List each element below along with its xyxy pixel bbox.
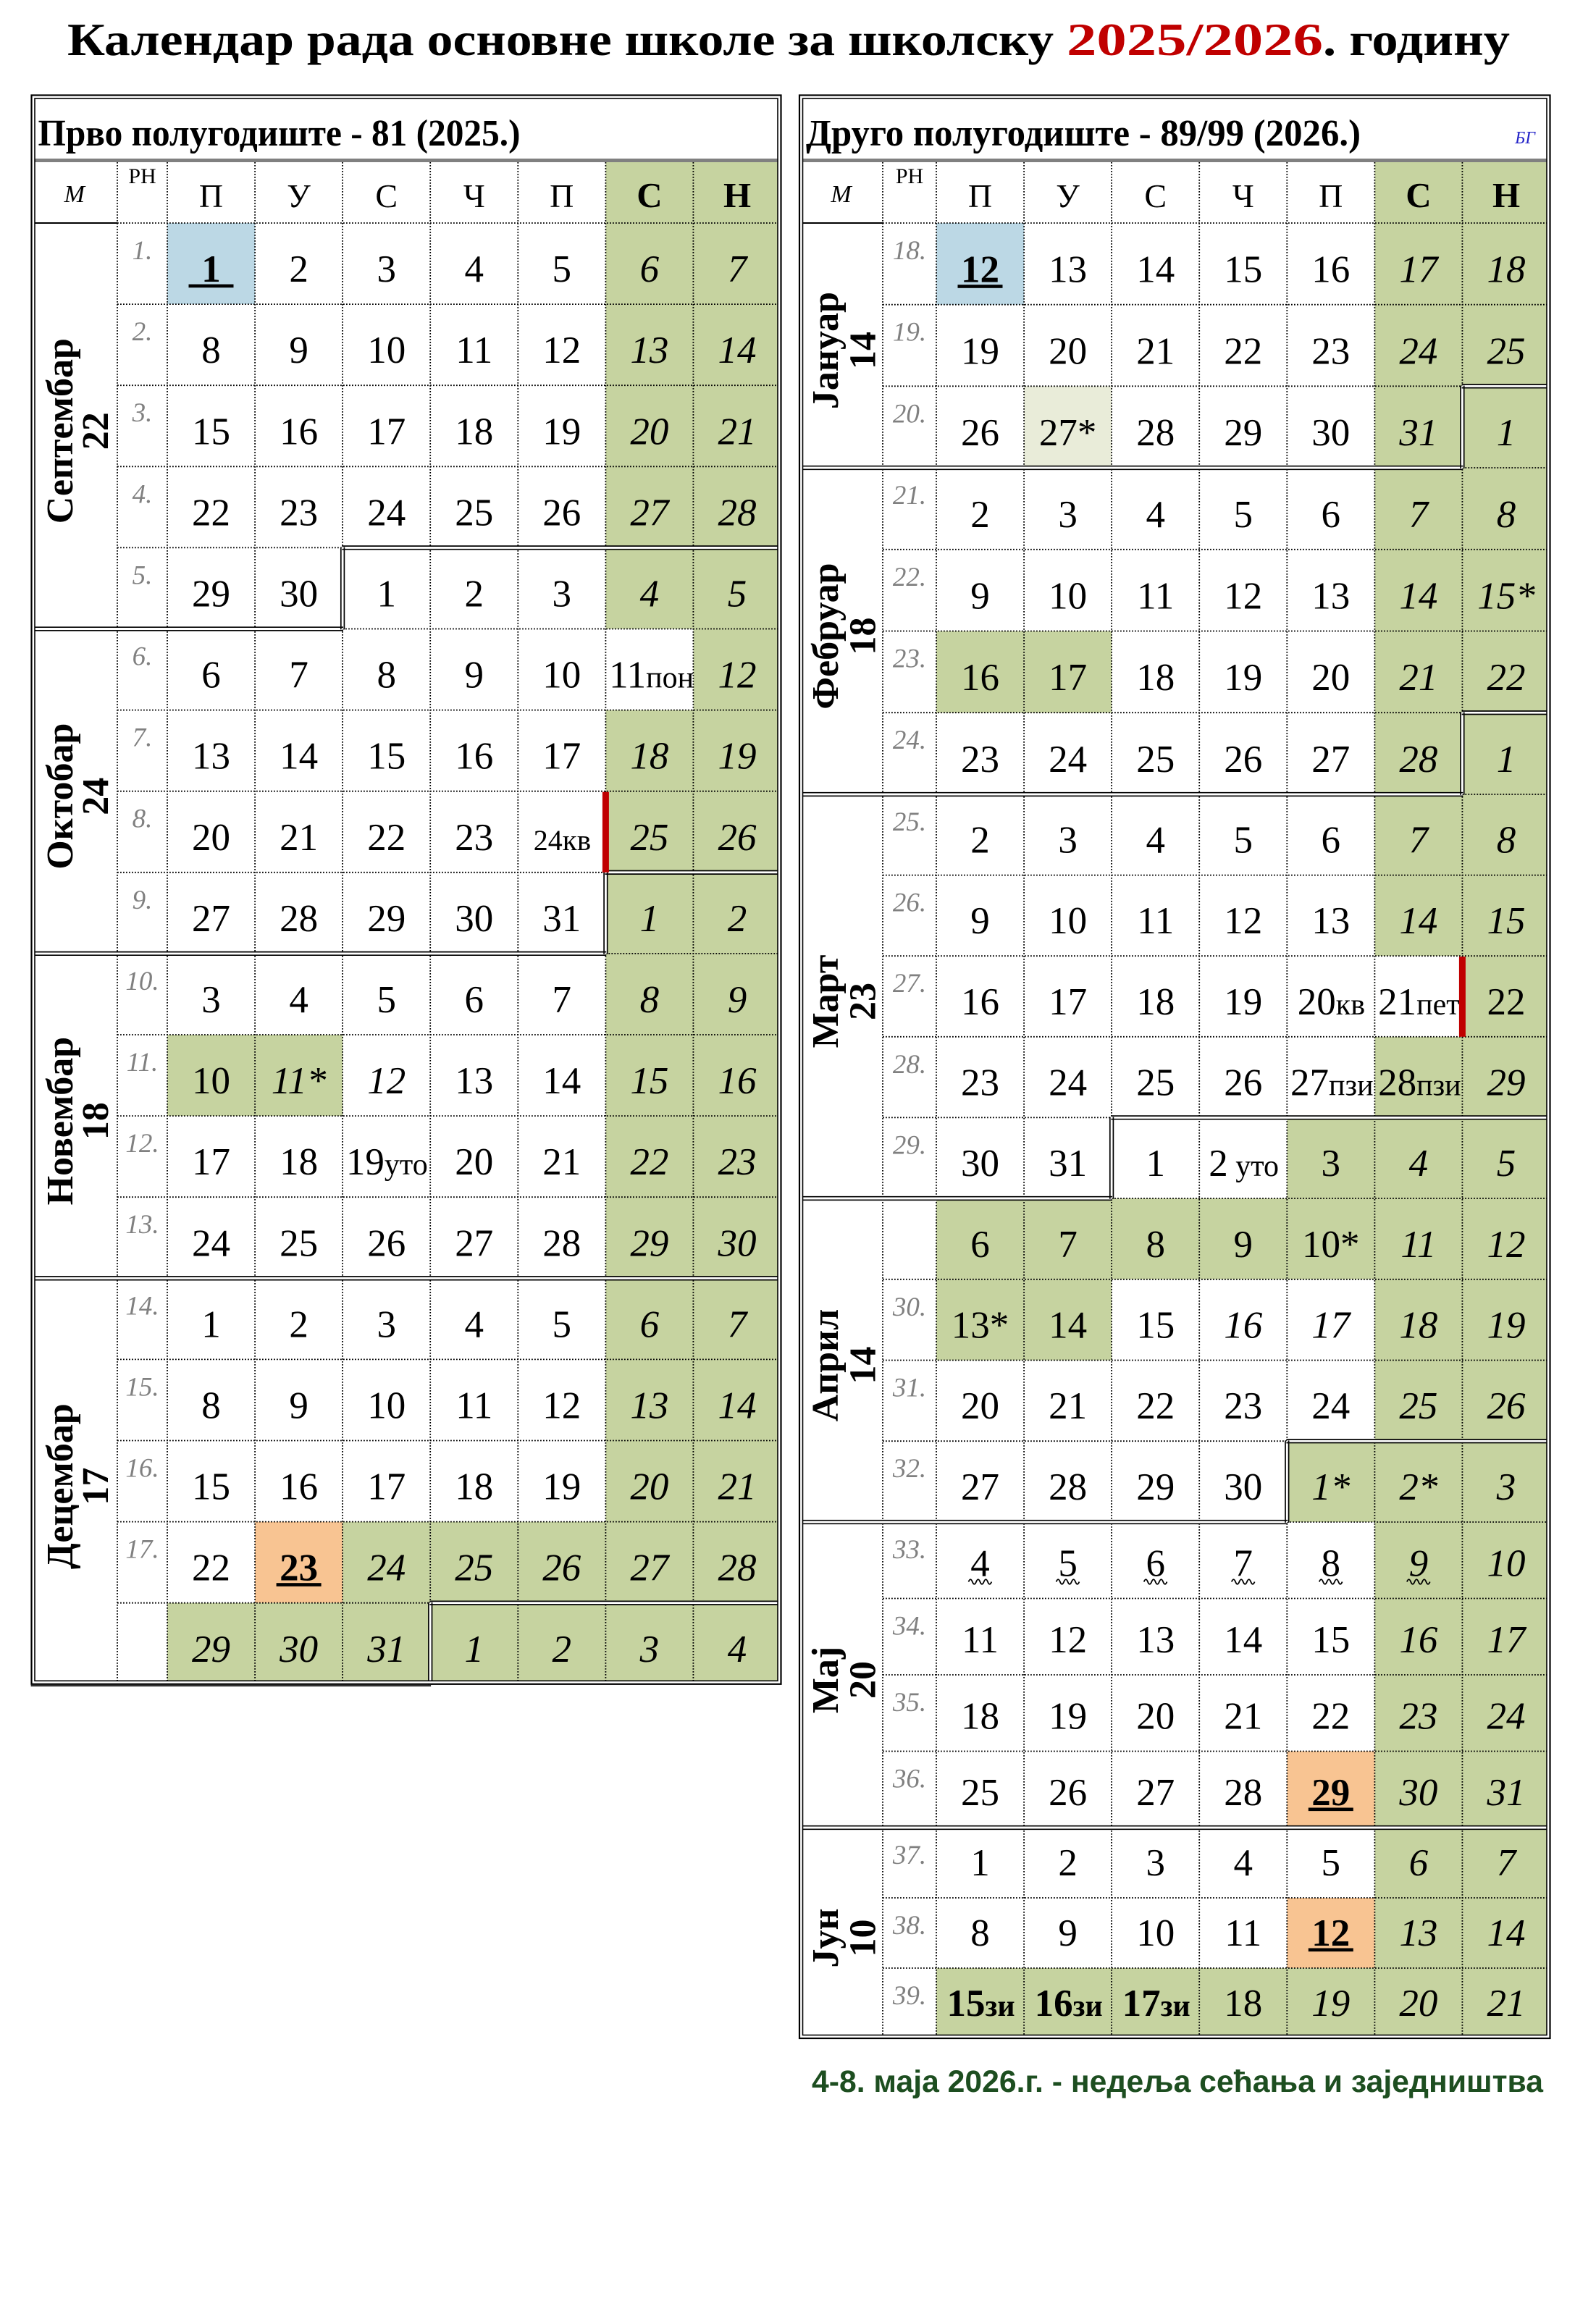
svg-text:6.: 6. xyxy=(133,642,153,672)
svg-text:18: 18 xyxy=(280,1141,318,1183)
svg-text:Јун: Јун xyxy=(805,1909,847,1968)
svg-text:28: 28 xyxy=(1136,412,1175,454)
svg-text:25: 25 xyxy=(455,1547,493,1589)
svg-text:8.: 8. xyxy=(133,804,153,834)
svg-text:П: П xyxy=(550,177,574,214)
svg-text:29.: 29. xyxy=(893,1130,926,1160)
svg-text:1: 1 xyxy=(377,573,396,615)
svg-text:7: 7 xyxy=(1234,1543,1253,1585)
svg-text:22.: 22. xyxy=(893,563,926,592)
svg-text:15: 15 xyxy=(192,411,230,453)
svg-text:8: 8 xyxy=(640,979,660,1021)
svg-text:7: 7 xyxy=(1058,1224,1078,1266)
svg-text:21: 21 xyxy=(1399,657,1437,699)
svg-text:38.: 38. xyxy=(892,1911,926,1941)
svg-text:2: 2 xyxy=(289,248,308,290)
svg-text:30: 30 xyxy=(1311,412,1350,454)
svg-text:27.: 27. xyxy=(893,969,926,999)
svg-text:24.: 24. xyxy=(893,726,926,755)
svg-text:РН: РН xyxy=(896,164,923,188)
svg-text:20: 20 xyxy=(1399,1983,1437,2025)
svg-text:29: 29 xyxy=(192,1628,230,1670)
svg-text:11*: 11* xyxy=(272,1060,327,1102)
svg-text:27: 27 xyxy=(192,898,230,940)
svg-text:21: 21 xyxy=(718,1466,757,1508)
svg-text:31: 31 xyxy=(1049,1143,1087,1185)
svg-text:8: 8 xyxy=(1497,494,1516,536)
svg-text:14: 14 xyxy=(1399,576,1437,618)
svg-text:9: 9 xyxy=(970,576,990,618)
svg-text:17: 17 xyxy=(75,1468,117,1505)
svg-text:2: 2 xyxy=(728,898,747,940)
svg-text:16: 16 xyxy=(961,981,999,1023)
svg-text:29: 29 xyxy=(1224,412,1262,454)
svg-text:26: 26 xyxy=(367,1222,406,1264)
svg-text:3: 3 xyxy=(1146,1842,1165,1884)
svg-text:12: 12 xyxy=(367,1060,406,1102)
svg-text:10: 10 xyxy=(843,1920,884,1957)
svg-text:21: 21 xyxy=(1487,1983,1526,2025)
svg-text:15: 15 xyxy=(192,1466,230,1508)
svg-text:15*: 15* xyxy=(1477,576,1535,618)
svg-text:2.: 2. xyxy=(133,317,153,347)
svg-text:4: 4 xyxy=(1409,1143,1429,1185)
svg-text:24кв: 24кв xyxy=(534,823,591,857)
svg-text:4: 4 xyxy=(465,1303,484,1345)
svg-text:29: 29 xyxy=(1136,1466,1175,1508)
svg-text:3: 3 xyxy=(553,573,572,615)
svg-text:10: 10 xyxy=(1049,900,1087,942)
svg-text:10: 10 xyxy=(367,329,406,371)
svg-text:9: 9 xyxy=(1409,1543,1429,1585)
svg-text:30: 30 xyxy=(718,1222,757,1264)
svg-text:28: 28 xyxy=(542,1222,581,1264)
svg-text:3: 3 xyxy=(377,1303,396,1345)
svg-text:22: 22 xyxy=(367,817,406,859)
svg-text:32.: 32. xyxy=(892,1454,926,1484)
svg-text:13: 13 xyxy=(1049,249,1087,291)
svg-text:Април: Април xyxy=(805,1309,847,1422)
svg-text:1: 1 xyxy=(970,1842,990,1884)
svg-text:8: 8 xyxy=(201,329,221,371)
svg-text:Ч: Ч xyxy=(1232,177,1254,214)
svg-text:4-8. маја 2026.г. - недеља сећ: 4-8. маја 2026.г. - недеља сећања и заје… xyxy=(812,2064,1544,2099)
svg-text:24: 24 xyxy=(367,492,406,534)
svg-text:28: 28 xyxy=(1224,1772,1262,1814)
svg-text:16: 16 xyxy=(1311,249,1350,291)
svg-text:21: 21 xyxy=(1224,1696,1262,1738)
svg-text:1: 1 xyxy=(201,248,221,290)
svg-text:22: 22 xyxy=(192,1547,230,1589)
svg-text:6: 6 xyxy=(640,1303,660,1345)
svg-text:5: 5 xyxy=(1058,1543,1078,1585)
svg-text:9: 9 xyxy=(1058,1912,1078,1954)
svg-text:3: 3 xyxy=(377,248,396,290)
svg-text:10*: 10* xyxy=(1302,1224,1360,1266)
svg-text:27: 27 xyxy=(1311,739,1350,781)
svg-text:11: 11 xyxy=(455,1385,492,1427)
svg-text:8: 8 xyxy=(201,1385,221,1427)
svg-text:20: 20 xyxy=(843,1661,884,1699)
svg-text:5: 5 xyxy=(377,979,396,1021)
svg-text:29: 29 xyxy=(367,898,406,940)
svg-text:2: 2 xyxy=(553,1628,572,1670)
svg-text:7: 7 xyxy=(553,979,572,1021)
svg-text:11: 11 xyxy=(1137,576,1174,618)
svg-text:15: 15 xyxy=(1487,900,1526,942)
svg-text:19: 19 xyxy=(1224,981,1262,1023)
svg-text:18: 18 xyxy=(455,411,493,453)
svg-text:2: 2 xyxy=(970,494,990,536)
svg-text:16: 16 xyxy=(961,657,999,699)
svg-text:30: 30 xyxy=(961,1143,999,1185)
svg-text:22: 22 xyxy=(1487,981,1526,1023)
svg-text:3.: 3. xyxy=(132,398,153,428)
svg-text:23: 23 xyxy=(280,492,318,534)
svg-text:18: 18 xyxy=(630,736,668,778)
svg-text:17: 17 xyxy=(542,736,581,778)
svg-text:15: 15 xyxy=(630,1060,668,1102)
svg-text:3: 3 xyxy=(1322,1143,1341,1185)
svg-text:22: 22 xyxy=(1311,1696,1350,1738)
svg-text:13: 13 xyxy=(1136,1619,1175,1661)
svg-text:21: 21 xyxy=(718,411,757,453)
svg-text:9: 9 xyxy=(465,655,484,697)
svg-text:17: 17 xyxy=(1487,1619,1528,1661)
svg-text:П: П xyxy=(199,177,223,214)
svg-text:24: 24 xyxy=(192,1222,230,1264)
svg-text:16: 16 xyxy=(1224,1305,1263,1347)
svg-text:18: 18 xyxy=(455,1466,493,1508)
svg-text:19: 19 xyxy=(1487,1305,1526,1347)
svg-text:30: 30 xyxy=(280,573,318,615)
svg-text:30: 30 xyxy=(455,898,493,940)
svg-text:23: 23 xyxy=(961,739,999,781)
svg-text:12.: 12. xyxy=(125,1129,159,1159)
svg-text:8: 8 xyxy=(1146,1224,1165,1266)
svg-text:22: 22 xyxy=(75,412,117,450)
svg-text:18.: 18. xyxy=(893,236,926,266)
svg-text:14: 14 xyxy=(843,332,884,369)
svg-text:Друго полугодиште - 89/99 (202: Друго полугодиште - 89/99 (2026.) xyxy=(806,113,1361,154)
svg-text:16: 16 xyxy=(280,411,318,453)
svg-text:10.: 10. xyxy=(125,967,159,996)
svg-text:12: 12 xyxy=(542,1385,581,1427)
svg-text:16: 16 xyxy=(1399,1619,1438,1661)
svg-text:3: 3 xyxy=(639,1628,660,1670)
svg-text:31: 31 xyxy=(542,898,581,940)
svg-text:12: 12 xyxy=(961,249,999,291)
svg-text:26: 26 xyxy=(1224,1062,1262,1104)
svg-text:28.: 28. xyxy=(893,1050,926,1080)
svg-text:14: 14 xyxy=(1049,1305,1087,1347)
svg-text:2: 2 xyxy=(465,573,484,615)
svg-text:9: 9 xyxy=(728,979,747,1021)
svg-text:3: 3 xyxy=(201,979,221,1021)
svg-text:М: М xyxy=(830,181,852,208)
svg-text:19: 19 xyxy=(542,411,581,453)
svg-text:5: 5 xyxy=(553,1303,572,1345)
svg-text:19: 19 xyxy=(542,1466,581,1508)
svg-text:31.: 31. xyxy=(892,1374,926,1403)
svg-text:14: 14 xyxy=(280,736,318,778)
svg-text:19: 19 xyxy=(1311,1983,1350,2025)
svg-text:30.: 30. xyxy=(892,1293,926,1322)
svg-text:8: 8 xyxy=(1497,820,1516,862)
svg-text:33.: 33. xyxy=(892,1535,926,1565)
svg-text:10: 10 xyxy=(1487,1543,1526,1585)
svg-text:Н: Н xyxy=(1492,175,1520,215)
svg-text:20: 20 xyxy=(455,1141,493,1183)
svg-text:31: 31 xyxy=(1487,1772,1526,1814)
svg-text:16: 16 xyxy=(280,1466,318,1508)
svg-text:17: 17 xyxy=(1399,249,1440,291)
svg-text:26: 26 xyxy=(718,817,757,859)
svg-text:С: С xyxy=(375,177,398,214)
svg-text:19: 19 xyxy=(1224,657,1262,699)
svg-text:8: 8 xyxy=(377,655,396,697)
svg-text:25: 25 xyxy=(1487,330,1526,372)
svg-text:4: 4 xyxy=(1146,494,1165,536)
svg-text:27: 27 xyxy=(630,1547,671,1589)
svg-text:23: 23 xyxy=(455,817,493,859)
svg-text:14: 14 xyxy=(1487,1912,1526,1954)
svg-text:12: 12 xyxy=(1311,1912,1350,1954)
svg-text:7: 7 xyxy=(1409,494,1430,536)
svg-text:24: 24 xyxy=(1487,1696,1526,1738)
svg-text:С: С xyxy=(637,175,662,215)
svg-text:18: 18 xyxy=(1487,249,1526,291)
svg-text:10: 10 xyxy=(367,1385,406,1427)
svg-text:34.: 34. xyxy=(892,1612,926,1642)
svg-text:13: 13 xyxy=(630,329,668,371)
svg-text:35.: 35. xyxy=(892,1688,926,1718)
svg-text:21: 21 xyxy=(542,1141,581,1183)
svg-text:7.: 7. xyxy=(133,723,153,753)
svg-text:11: 11 xyxy=(455,329,492,371)
svg-text:17: 17 xyxy=(367,411,406,453)
svg-text:23: 23 xyxy=(843,983,884,1020)
svg-text:11: 11 xyxy=(1400,1224,1436,1266)
svg-text:Фебруар: Фебруар xyxy=(805,563,847,709)
svg-text:8: 8 xyxy=(1322,1543,1341,1585)
svg-text:31: 31 xyxy=(1398,412,1437,454)
svg-text:25: 25 xyxy=(961,1772,999,1814)
svg-text:18: 18 xyxy=(961,1696,999,1738)
svg-text:20.: 20. xyxy=(893,399,926,429)
svg-text:4: 4 xyxy=(289,979,308,1021)
svg-text:27*: 27* xyxy=(1039,412,1097,454)
svg-text:5: 5 xyxy=(1322,1842,1341,1884)
svg-text:4: 4 xyxy=(640,573,660,615)
svg-text:10: 10 xyxy=(192,1060,230,1102)
svg-text:15: 15 xyxy=(1136,1305,1175,1347)
svg-text:11: 11 xyxy=(1137,900,1174,942)
svg-text:4.: 4. xyxy=(133,479,153,509)
svg-text:24: 24 xyxy=(1049,739,1087,781)
svg-text:24: 24 xyxy=(367,1547,406,1589)
svg-text:8: 8 xyxy=(970,1912,990,1954)
svg-text:17: 17 xyxy=(1049,981,1087,1023)
svg-text:20: 20 xyxy=(192,817,230,859)
svg-text:1: 1 xyxy=(640,898,660,940)
svg-text:30: 30 xyxy=(1398,1772,1437,1814)
svg-text:13: 13 xyxy=(192,736,230,778)
svg-text:14: 14 xyxy=(718,329,757,371)
svg-text:25.: 25. xyxy=(893,807,926,837)
svg-text:20: 20 xyxy=(630,411,668,453)
svg-text:25: 25 xyxy=(1399,1385,1437,1427)
svg-text:19.: 19. xyxy=(893,318,926,348)
svg-text:14: 14 xyxy=(1136,249,1175,291)
svg-text:У: У xyxy=(287,177,311,214)
svg-text:28: 28 xyxy=(280,898,318,940)
svg-text:17: 17 xyxy=(1311,1305,1352,1347)
svg-text:13: 13 xyxy=(455,1060,493,1102)
svg-text:4: 4 xyxy=(970,1543,990,1585)
svg-text:11: 11 xyxy=(962,1619,999,1661)
svg-text:4: 4 xyxy=(1234,1842,1253,1884)
svg-text:20: 20 xyxy=(961,1385,999,1427)
svg-text:1: 1 xyxy=(1146,1143,1165,1185)
svg-text:У: У xyxy=(1056,177,1080,214)
svg-text:28: 28 xyxy=(1399,739,1437,781)
svg-text:31: 31 xyxy=(366,1628,406,1670)
svg-text:24: 24 xyxy=(1399,330,1437,372)
svg-text:24: 24 xyxy=(1049,1062,1087,1104)
svg-text:13*: 13* xyxy=(952,1305,1009,1347)
svg-text:6: 6 xyxy=(640,248,660,290)
svg-text:12: 12 xyxy=(1049,1619,1087,1661)
svg-text:21: 21 xyxy=(280,817,318,859)
svg-text:20: 20 xyxy=(1049,330,1087,372)
svg-text:13: 13 xyxy=(630,1385,668,1427)
svg-text:26: 26 xyxy=(1224,739,1262,781)
svg-text:18: 18 xyxy=(1224,1983,1262,2025)
svg-text:13: 13 xyxy=(1311,900,1350,942)
svg-text:14: 14 xyxy=(1399,900,1437,942)
svg-text:25: 25 xyxy=(1136,1062,1175,1104)
svg-text:20: 20 xyxy=(1311,657,1350,699)
svg-text:10: 10 xyxy=(542,655,581,697)
svg-text:13.: 13. xyxy=(125,1210,159,1240)
svg-text:С: С xyxy=(1406,175,1431,215)
svg-text:6: 6 xyxy=(1322,494,1341,536)
svg-text:14: 14 xyxy=(843,1347,884,1384)
svg-text:6: 6 xyxy=(1146,1543,1165,1585)
svg-text:2*: 2* xyxy=(1399,1466,1438,1508)
svg-text:5: 5 xyxy=(1497,1143,1516,1185)
svg-text:7: 7 xyxy=(728,248,749,290)
svg-text:16: 16 xyxy=(455,736,493,778)
svg-text:11: 11 xyxy=(1225,1912,1261,1954)
svg-text:22: 22 xyxy=(1224,330,1262,372)
svg-text:6: 6 xyxy=(970,1224,990,1266)
svg-text:15: 15 xyxy=(1311,1619,1350,1661)
svg-text:23: 23 xyxy=(1224,1385,1262,1427)
svg-text:19: 19 xyxy=(1049,1696,1087,1738)
svg-text:1: 1 xyxy=(465,1628,484,1670)
svg-text:6: 6 xyxy=(201,655,221,697)
svg-text:П: П xyxy=(1319,177,1343,214)
svg-text:26: 26 xyxy=(1487,1385,1526,1427)
svg-text:22: 22 xyxy=(630,1141,668,1183)
svg-text:18: 18 xyxy=(75,1102,117,1140)
svg-text:6: 6 xyxy=(465,979,484,1021)
svg-text:5: 5 xyxy=(1234,820,1253,862)
svg-text:23: 23 xyxy=(280,1547,318,1589)
svg-text:30: 30 xyxy=(1224,1466,1262,1508)
svg-text:28: 28 xyxy=(718,492,757,534)
svg-text:23: 23 xyxy=(1399,1696,1437,1738)
svg-text:11.: 11. xyxy=(127,1048,159,1077)
svg-text:7: 7 xyxy=(728,1303,749,1345)
svg-text:39.: 39. xyxy=(892,1981,926,2011)
svg-text:14.: 14. xyxy=(125,1291,159,1321)
svg-text:С: С xyxy=(1144,177,1167,214)
svg-text:1: 1 xyxy=(1497,412,1516,454)
svg-text:18: 18 xyxy=(1136,657,1175,699)
svg-text:3: 3 xyxy=(1058,820,1078,862)
svg-text:12: 12 xyxy=(1224,900,1262,942)
svg-text:1*: 1* xyxy=(1311,1466,1351,1508)
svg-text:БГ: БГ xyxy=(1514,129,1536,148)
svg-text:22: 22 xyxy=(1487,657,1526,699)
svg-text:7: 7 xyxy=(1497,1842,1518,1884)
svg-text:19: 19 xyxy=(961,330,999,372)
svg-text:19: 19 xyxy=(718,736,757,778)
svg-text:24: 24 xyxy=(1311,1385,1350,1427)
svg-text:21: 21 xyxy=(1049,1385,1087,1427)
svg-text:27: 27 xyxy=(1136,1772,1175,1814)
svg-text:5: 5 xyxy=(728,573,747,615)
svg-text:3: 3 xyxy=(1496,1466,1516,1508)
svg-text:27: 27 xyxy=(630,492,671,534)
svg-text:7: 7 xyxy=(289,655,308,697)
svg-text:15: 15 xyxy=(367,736,406,778)
svg-text:17: 17 xyxy=(192,1141,230,1183)
svg-text:23.: 23. xyxy=(893,644,926,674)
svg-text:10: 10 xyxy=(1049,576,1087,618)
svg-text:2: 2 xyxy=(970,820,990,862)
svg-text:2: 2 xyxy=(289,1303,308,1345)
svg-text:21: 21 xyxy=(1136,330,1175,372)
svg-text:3: 3 xyxy=(1058,494,1078,536)
svg-text:17: 17 xyxy=(1049,657,1087,699)
svg-text:1: 1 xyxy=(201,1303,221,1345)
svg-text:26: 26 xyxy=(542,492,581,534)
svg-text:27: 27 xyxy=(961,1466,999,1508)
svg-text:6: 6 xyxy=(1322,820,1341,862)
svg-text:12: 12 xyxy=(1224,576,1262,618)
svg-text:12: 12 xyxy=(542,329,581,371)
svg-text:4: 4 xyxy=(465,248,484,290)
svg-text:28: 28 xyxy=(1049,1466,1087,1508)
svg-text:28: 28 xyxy=(718,1547,757,1589)
svg-text:29: 29 xyxy=(1311,1772,1350,1814)
svg-text:23: 23 xyxy=(1311,330,1350,372)
svg-text:Н: Н xyxy=(723,175,751,215)
svg-text:17: 17 xyxy=(367,1466,406,1508)
svg-text:П: П xyxy=(968,177,992,214)
svg-text:22: 22 xyxy=(192,492,230,534)
svg-text:Мај: Мај xyxy=(805,1647,847,1713)
svg-text:26: 26 xyxy=(1049,1772,1087,1814)
svg-text:20: 20 xyxy=(630,1466,668,1508)
svg-text:Прво полугодиште - 81 (2025.): Прво полугодиште - 81 (2025.) xyxy=(38,113,521,154)
svg-text:6: 6 xyxy=(1409,1842,1429,1884)
svg-text:37.: 37. xyxy=(892,1841,926,1870)
